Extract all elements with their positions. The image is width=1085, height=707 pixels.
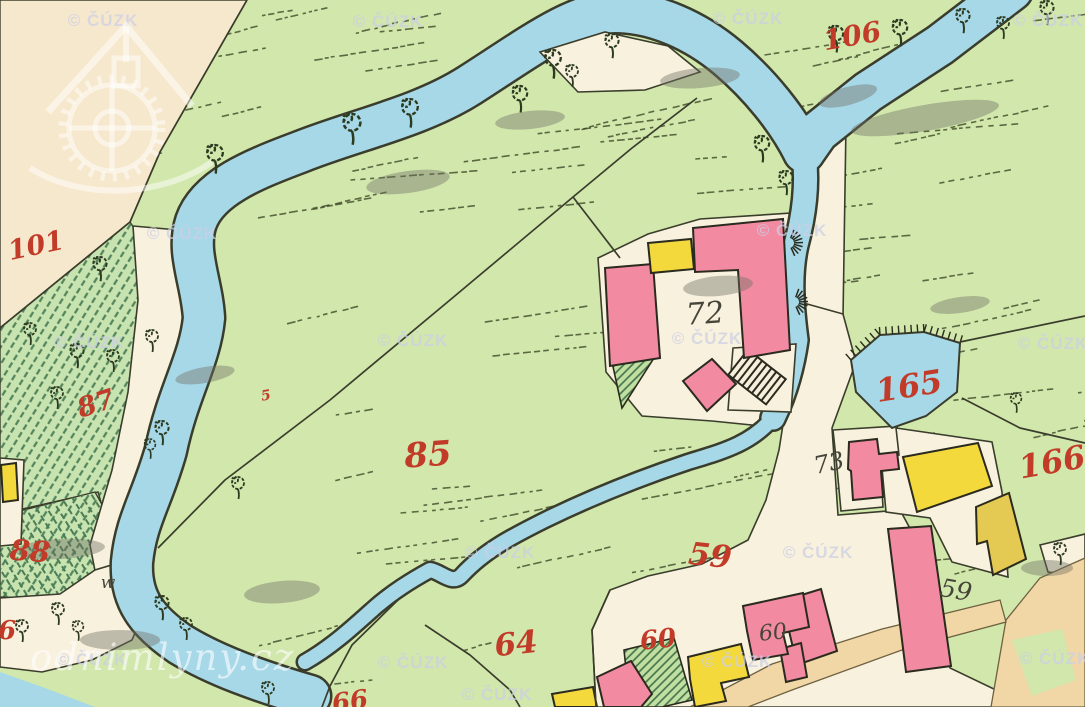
building-left-edge-wooden — [1, 463, 18, 502]
map-canvas — [0, 0, 1085, 707]
cadastral-map: 101106878885559646066616516672735960w © … — [0, 0, 1085, 707]
building-72-west — [605, 264, 660, 366]
building-72-wooden — [648, 239, 694, 273]
